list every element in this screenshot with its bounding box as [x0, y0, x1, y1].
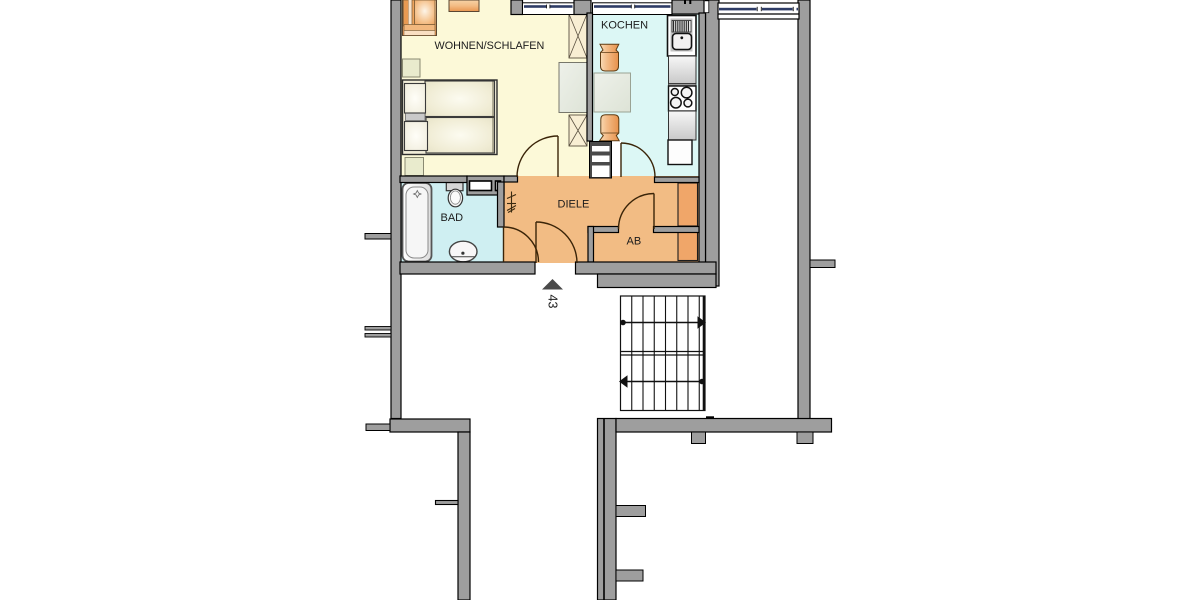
svg-text:KOCHEN: KOCHEN [601, 20, 648, 32]
svg-text:43: 43 [546, 295, 560, 309]
svg-text:BAD: BAD [441, 212, 464, 224]
svg-text:DIELE: DIELE [558, 199, 590, 211]
svg-text:AB: AB [627, 236, 642, 248]
svg-text:WOHNEN/SCHLAFEN: WOHNEN/SCHLAFEN [435, 40, 545, 52]
